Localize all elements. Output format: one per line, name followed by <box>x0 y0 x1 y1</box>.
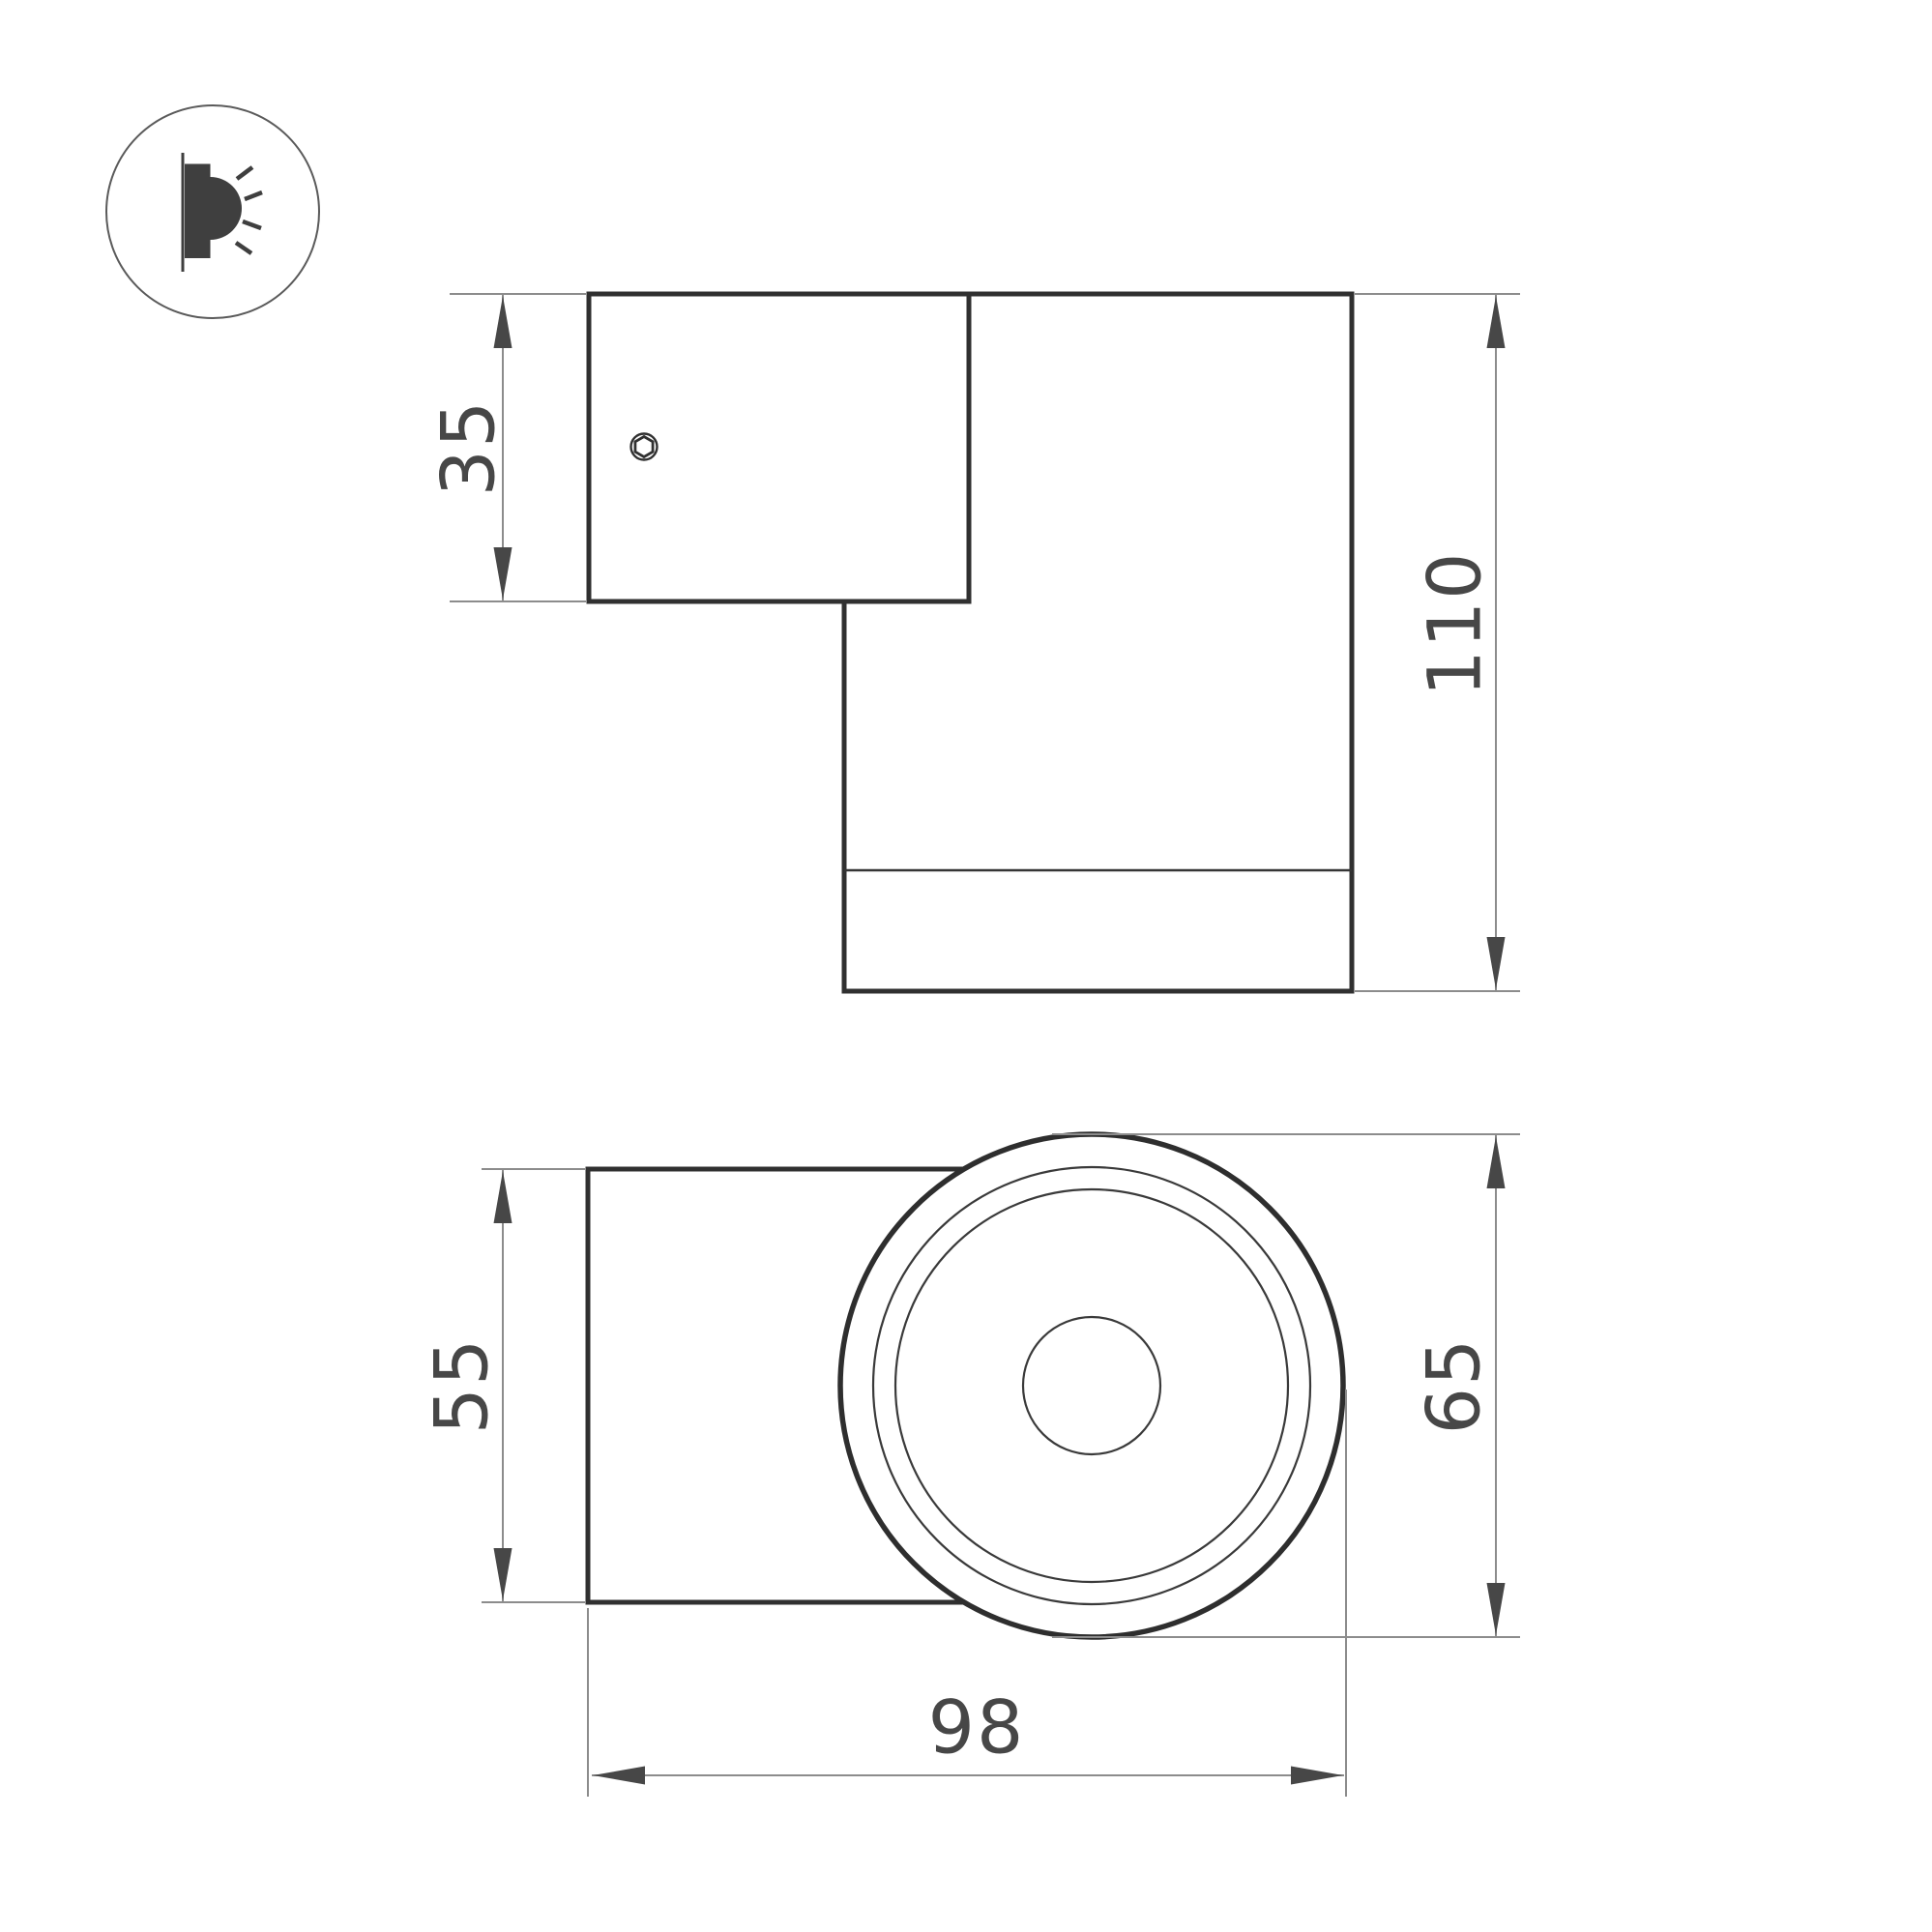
dim-label-total-width: 98 <box>928 1684 1026 1771</box>
dimension-mount-plate-height: 35 <box>425 294 587 601</box>
technical-dimension-drawing: 35 110 55 65 98 <box>0 0 1932 1932</box>
arrow-left-icon <box>593 1767 645 1785</box>
lamp-body-shape <box>185 164 211 259</box>
lamp-lens-dome <box>211 177 243 240</box>
dim-label-body-depth: 55 <box>419 1337 505 1435</box>
dimension-body-depth: 55 <box>419 1169 586 1602</box>
arrow-up-icon <box>494 1171 512 1223</box>
arrow-up-icon <box>494 296 512 348</box>
arrow-up-icon <box>1487 296 1506 348</box>
arrow-right-icon <box>1291 1767 1343 1785</box>
dim-label-plate-height: 35 <box>425 399 512 497</box>
arrow-down-icon <box>494 1548 512 1600</box>
arrow-up-icon <box>1487 1136 1506 1188</box>
arrow-down-icon <box>1487 937 1506 989</box>
arrow-down-icon <box>494 547 512 600</box>
front-view-lens-outer-circle <box>840 1134 1343 1637</box>
dim-label-lens-diameter: 65 <box>1411 1337 1497 1435</box>
arrow-down-icon <box>1487 1583 1506 1635</box>
dimension-total-height: 110 <box>1355 294 1520 991</box>
dim-label-total-height: 110 <box>1412 550 1498 696</box>
wall-light-icon <box>106 105 319 318</box>
front-view <box>588 1134 1343 1637</box>
side-view <box>589 294 1352 991</box>
